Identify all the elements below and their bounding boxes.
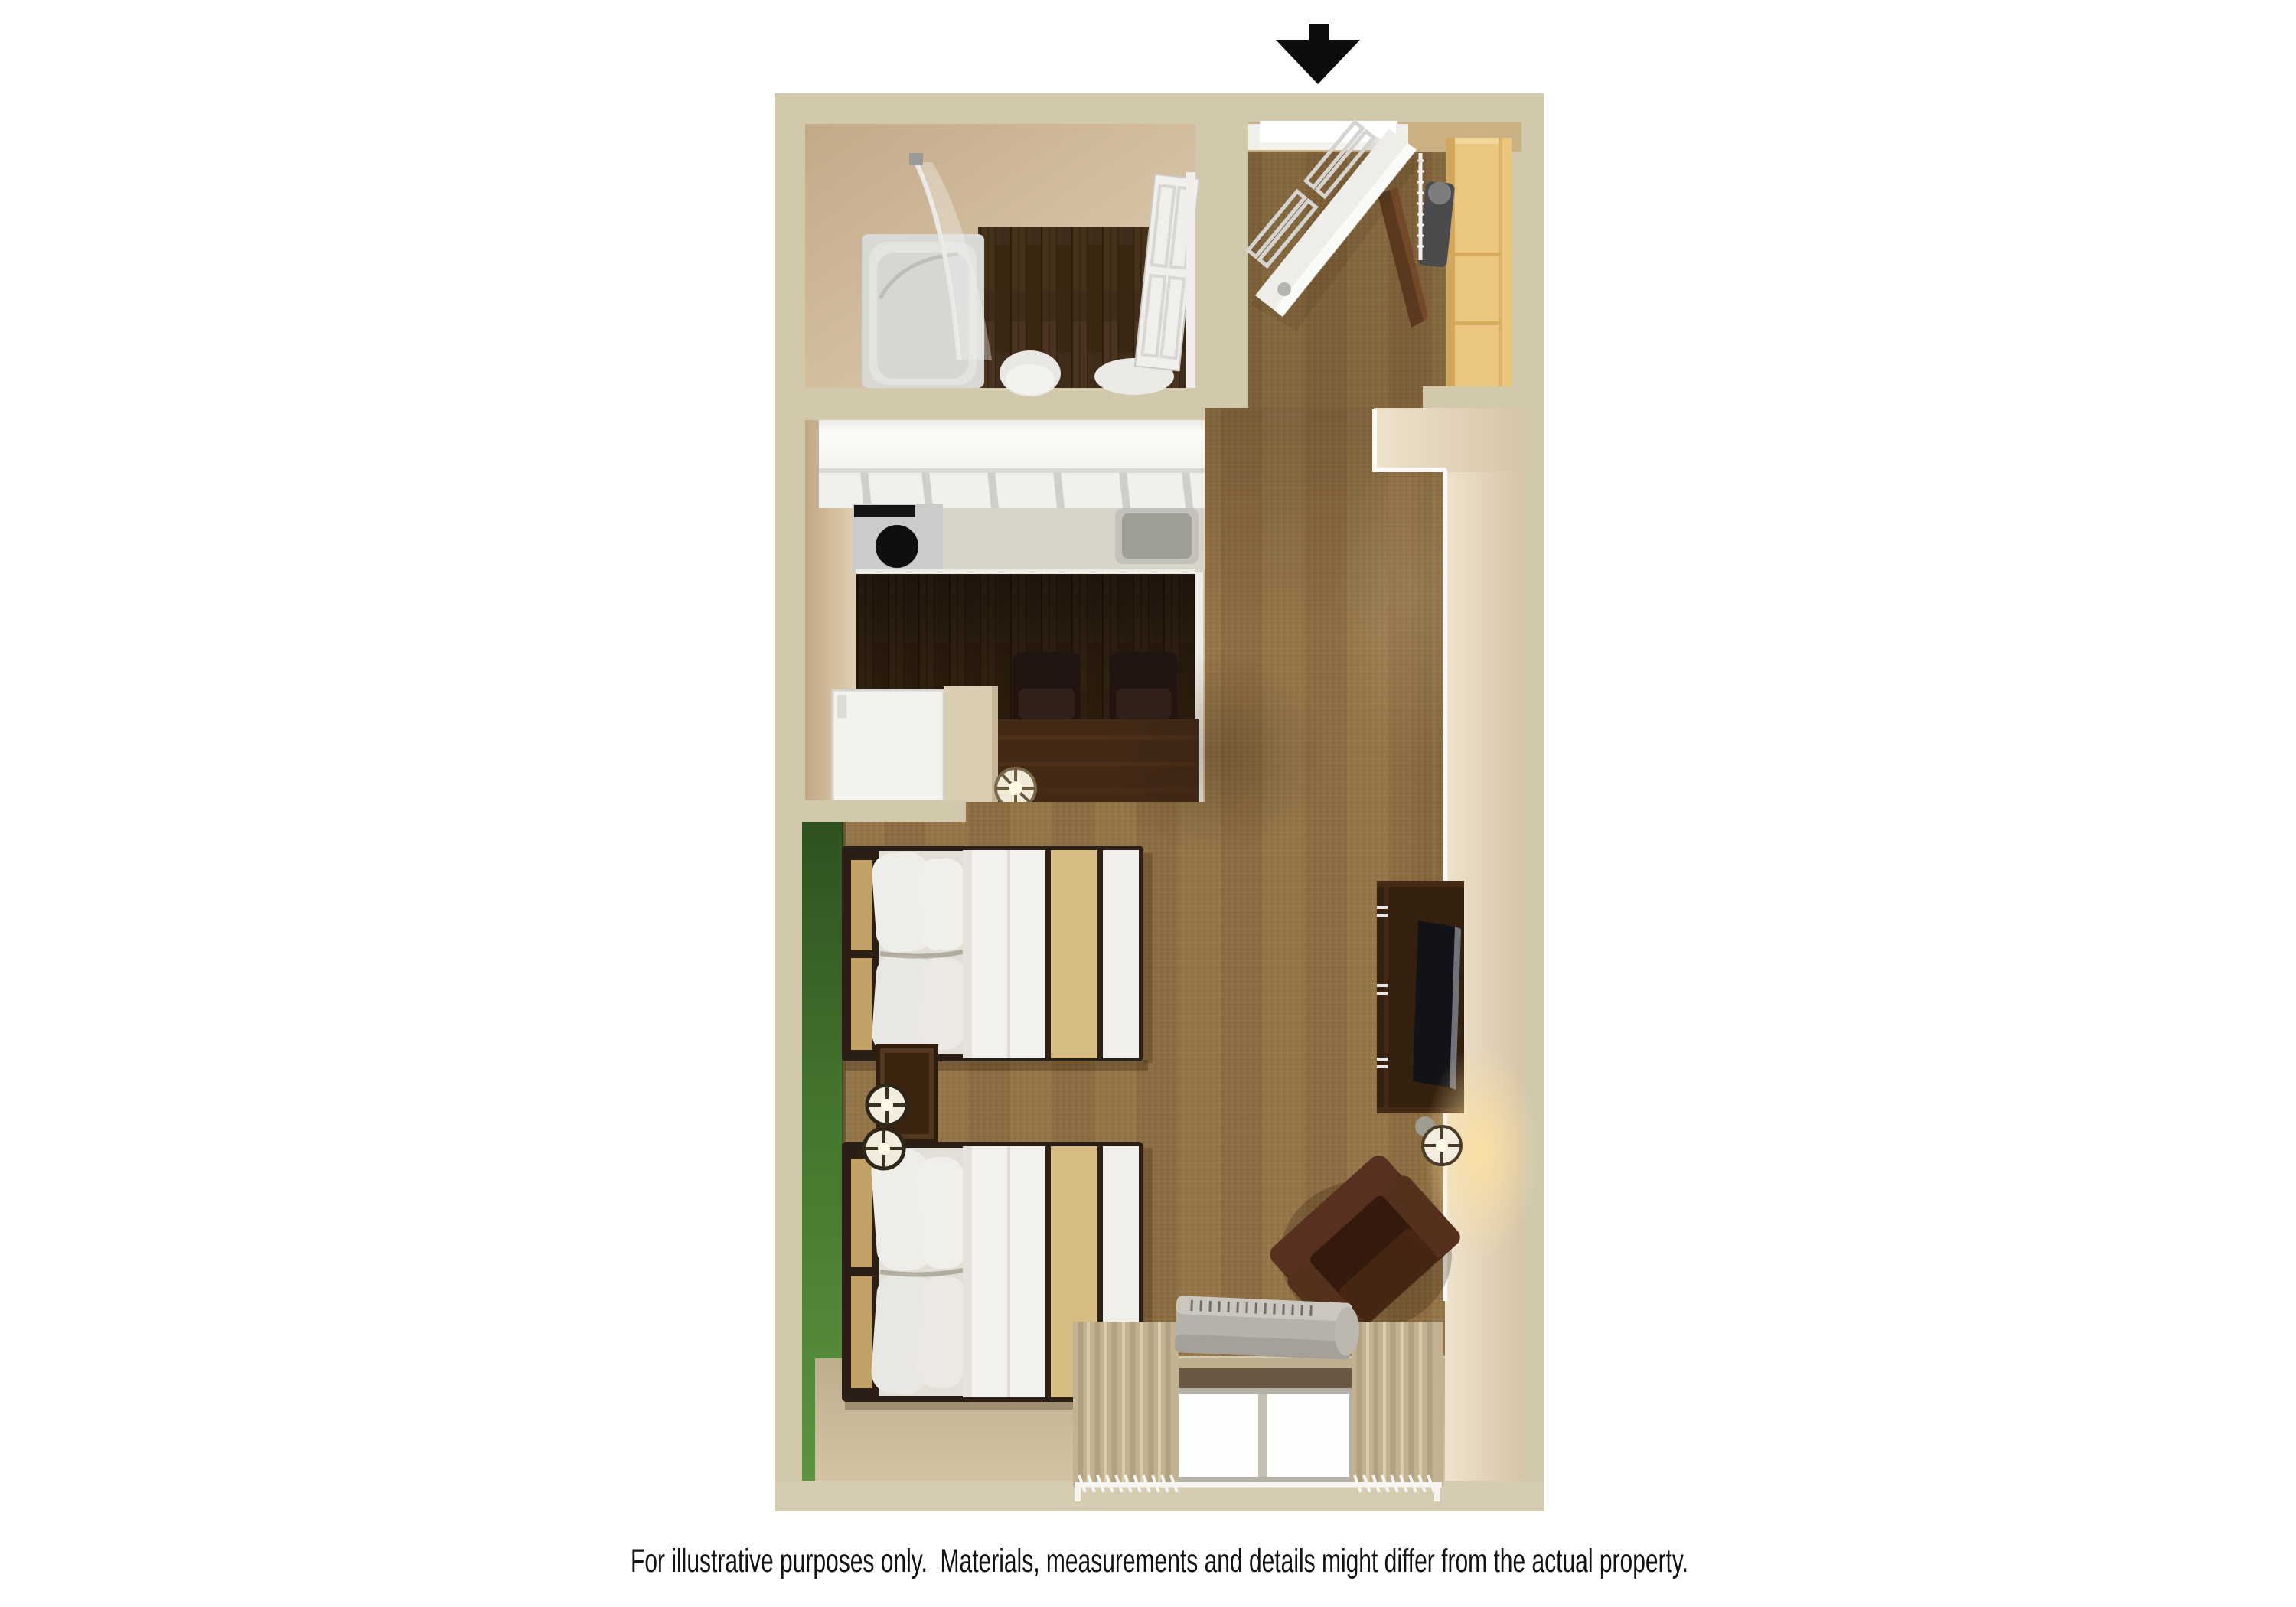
svg-text:For illustrative purposes only: For illustrative purposes only. Material… — [631, 1543, 1688, 1579]
